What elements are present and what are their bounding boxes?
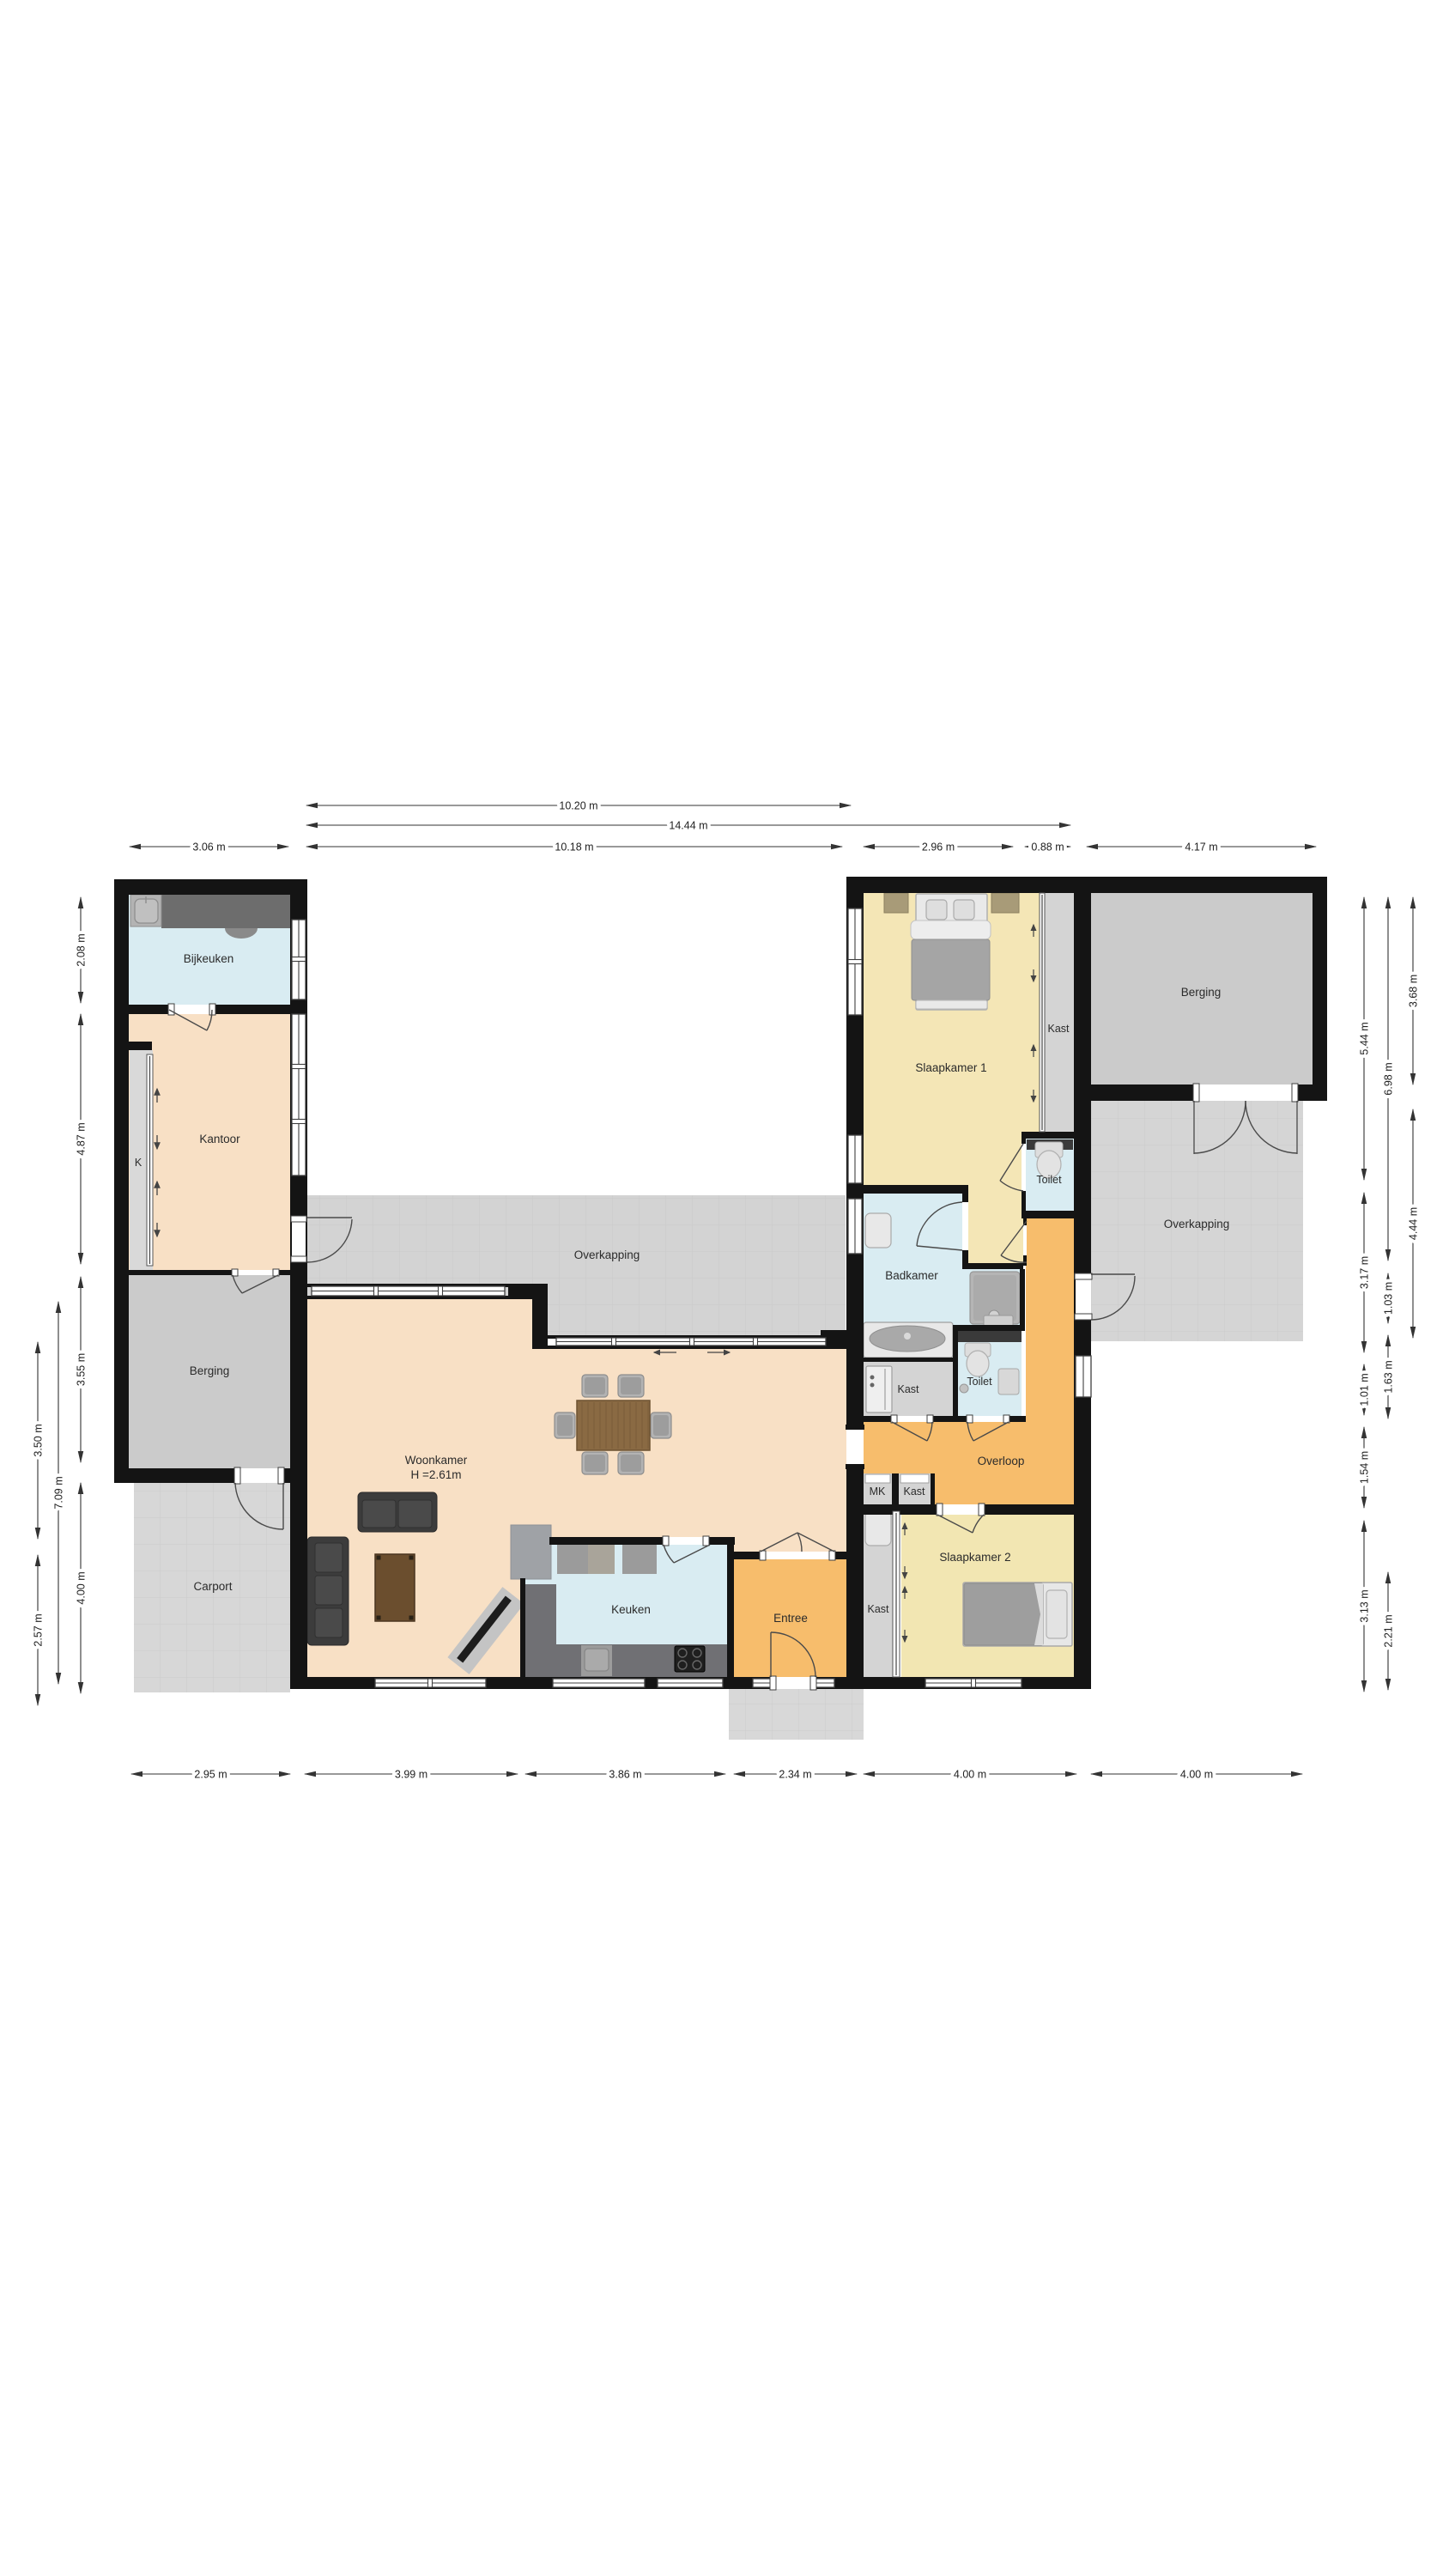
svg-text:K: K bbox=[135, 1157, 142, 1169]
svg-text:3.06 m: 3.06 m bbox=[192, 841, 225, 854]
svg-text:3.13 m: 3.13 m bbox=[1359, 1589, 1371, 1622]
svg-text:Berging: Berging bbox=[1181, 986, 1222, 999]
svg-text:H =2.61m: H =2.61m bbox=[411, 1468, 462, 1481]
svg-text:Badkamer: Badkamer bbox=[885, 1269, 938, 1282]
svg-text:0.88 m: 0.88 m bbox=[1031, 841, 1064, 854]
svg-text:MK: MK bbox=[870, 1485, 886, 1498]
svg-text:10.20 m: 10.20 m bbox=[559, 800, 597, 812]
svg-text:Bijkeuken: Bijkeuken bbox=[184, 952, 234, 965]
svg-text:Carport: Carport bbox=[193, 1580, 232, 1593]
svg-text:3.68 m: 3.68 m bbox=[1408, 975, 1420, 1007]
svg-text:3.50 m: 3.50 m bbox=[33, 1424, 45, 1456]
svg-text:Slaapkamer 1: Slaapkamer 1 bbox=[915, 1061, 986, 1074]
svg-text:2.34 m: 2.34 m bbox=[779, 1769, 811, 1781]
svg-text:2.21 m: 2.21 m bbox=[1383, 1614, 1395, 1647]
svg-text:3.86 m: 3.86 m bbox=[609, 1769, 641, 1781]
svg-text:Kast: Kast bbox=[897, 1383, 919, 1395]
svg-text:Woonkamer: Woonkamer bbox=[405, 1454, 468, 1467]
svg-text:2.57 m: 2.57 m bbox=[33, 1613, 45, 1646]
svg-text:4.44 m: 4.44 m bbox=[1408, 1207, 1420, 1240]
svg-text:Kast: Kast bbox=[903, 1485, 925, 1498]
svg-text:2.08 m: 2.08 m bbox=[76, 933, 88, 966]
svg-text:7.09 m: 7.09 m bbox=[53, 1476, 65, 1509]
svg-text:2.96 m: 2.96 m bbox=[922, 841, 955, 854]
svg-text:10.18 m: 10.18 m bbox=[555, 841, 593, 854]
svg-text:Kast: Kast bbox=[1047, 1023, 1070, 1035]
svg-text:Kast: Kast bbox=[867, 1603, 889, 1615]
svg-text:3.17 m: 3.17 m bbox=[1359, 1256, 1371, 1289]
svg-text:Slaapkamer 2: Slaapkamer 2 bbox=[939, 1551, 1010, 1564]
svg-text:Entree: Entree bbox=[773, 1612, 808, 1625]
svg-text:1.54 m: 1.54 m bbox=[1359, 1451, 1371, 1484]
svg-text:1.01 m: 1.01 m bbox=[1359, 1373, 1371, 1406]
svg-text:Overkapping: Overkapping bbox=[1164, 1218, 1230, 1230]
svg-text:1.03 m: 1.03 m bbox=[1383, 1282, 1395, 1315]
svg-text:Overloop: Overloop bbox=[978, 1455, 1025, 1467]
svg-text:5.44 m: 5.44 m bbox=[1359, 1022, 1371, 1054]
svg-text:Toilet: Toilet bbox=[1036, 1174, 1062, 1186]
svg-text:1.63 m: 1.63 m bbox=[1383, 1360, 1395, 1393]
svg-text:4.00 m: 4.00 m bbox=[76, 1571, 88, 1604]
svg-text:14.44 m: 14.44 m bbox=[669, 820, 707, 832]
svg-text:Toilet: Toilet bbox=[967, 1376, 992, 1388]
svg-text:4.00 m: 4.00 m bbox=[954, 1769, 986, 1781]
svg-text:4.17 m: 4.17 m bbox=[1185, 841, 1217, 854]
svg-text:6.98 m: 6.98 m bbox=[1383, 1062, 1395, 1095]
svg-text:4.00 m: 4.00 m bbox=[1180, 1769, 1213, 1781]
svg-text:Keuken: Keuken bbox=[611, 1603, 651, 1616]
svg-text:Kantoor: Kantoor bbox=[199, 1133, 240, 1145]
svg-text:3.55 m: 3.55 m bbox=[76, 1353, 88, 1386]
svg-text:3.99 m: 3.99 m bbox=[395, 1769, 427, 1781]
svg-text:Overkapping: Overkapping bbox=[574, 1249, 640, 1261]
svg-text:4.87 m: 4.87 m bbox=[76, 1122, 88, 1155]
svg-text:2.95 m: 2.95 m bbox=[194, 1769, 227, 1781]
svg-text:Berging: Berging bbox=[190, 1364, 230, 1377]
